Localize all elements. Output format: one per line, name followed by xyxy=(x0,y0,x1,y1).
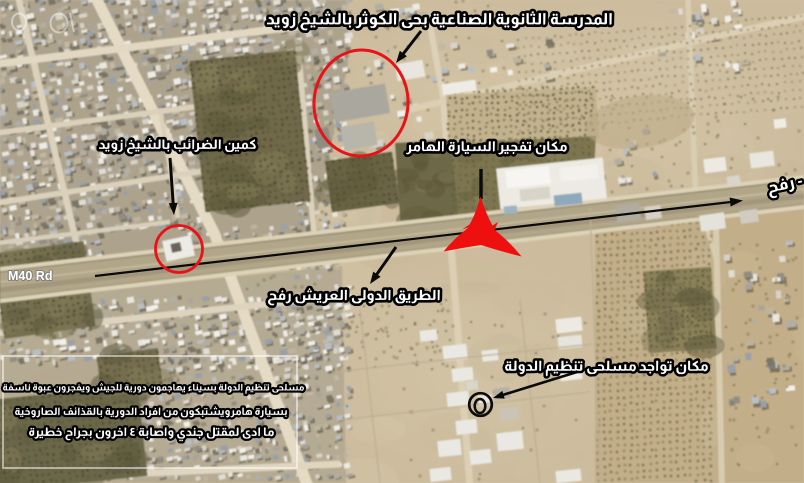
svg-text:M40 Rd: M40 Rd xyxy=(8,269,52,283)
